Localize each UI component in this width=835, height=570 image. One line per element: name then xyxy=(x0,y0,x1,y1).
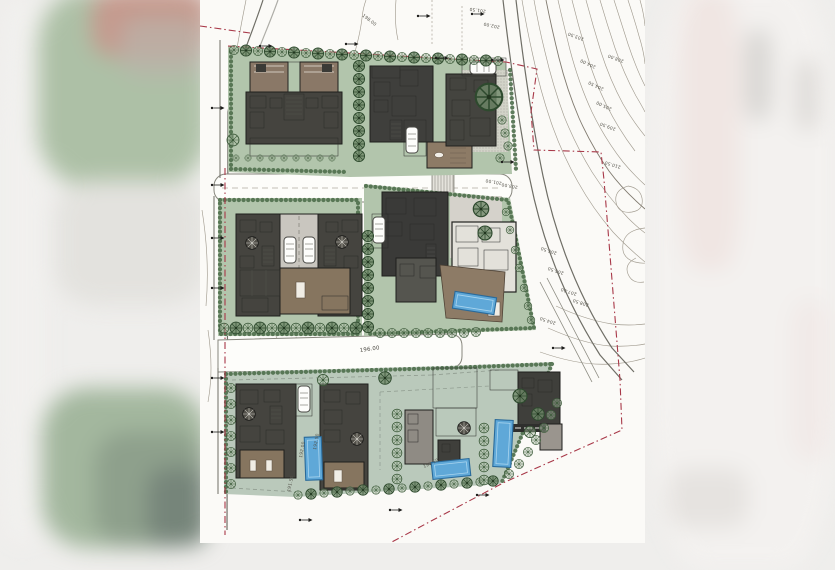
contour-elevation-label: 208.00 xyxy=(607,52,625,63)
blur-blob xyxy=(55,180,205,305)
contour-elevation-label: 207.00 xyxy=(560,286,578,297)
tree-row-lot-a-bottom xyxy=(233,155,335,161)
blur-blob xyxy=(680,0,740,270)
road-elevation-label: 198.00 xyxy=(361,13,378,28)
pool xyxy=(493,420,513,468)
blur-blob xyxy=(796,60,818,130)
blur-blob xyxy=(668,468,748,528)
blur-blob xyxy=(790,300,830,460)
site-plan-image: 198.00 196.00 191.50 192.00 192.50 190.5… xyxy=(200,0,645,543)
car-icon xyxy=(298,386,310,412)
car-icon xyxy=(284,237,296,263)
site-plan-drawing: 198.00 196.00 191.50 192.00 192.50 190.5… xyxy=(200,0,645,543)
contour-elevation-label: 201.50 xyxy=(469,6,486,14)
car-icon xyxy=(373,217,385,243)
car-icon xyxy=(303,237,315,263)
contour-elevation-label: 208.50 xyxy=(572,297,590,308)
building-lot-d-duplex xyxy=(236,214,362,316)
contour-elevation-label: 202.00 xyxy=(483,21,500,30)
contour-elevation-label: 205.00 xyxy=(595,99,613,111)
tree-row-lot-e-bottom xyxy=(375,327,480,337)
car-icon xyxy=(406,127,418,153)
contour-elevation-label: 204.50 xyxy=(539,315,557,326)
building-lot-g xyxy=(236,384,296,478)
blur-blob xyxy=(745,30,771,120)
contour-elevation-label: 206.50 xyxy=(540,245,558,256)
contour-elevation-label: 203.50 xyxy=(567,30,585,41)
blur-blob xyxy=(120,18,205,78)
blur-blob xyxy=(148,468,208,546)
